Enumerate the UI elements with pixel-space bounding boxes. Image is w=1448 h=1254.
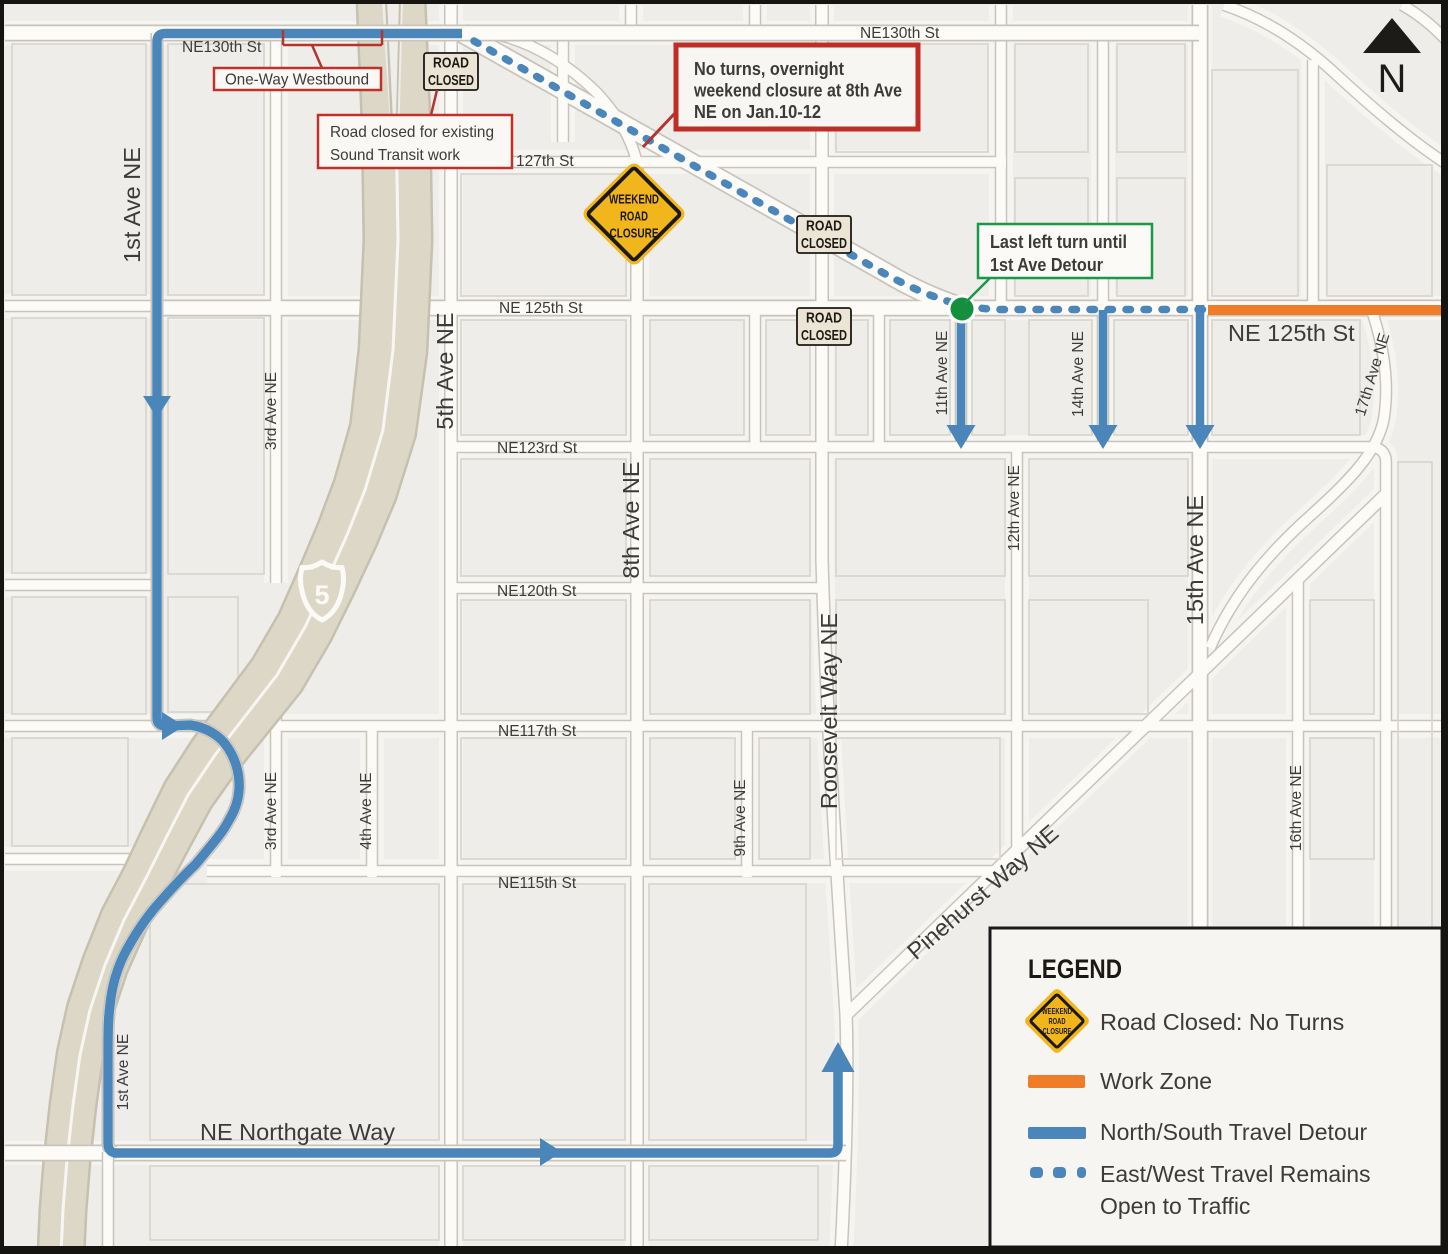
svg-text:ROAD: ROAD — [806, 218, 842, 235]
svg-text:NE115th St: NE115th St — [498, 875, 577, 892]
svg-text:CLOSED: CLOSED — [428, 72, 474, 89]
svg-text:1st Ave NE: 1st Ave NE — [119, 147, 145, 263]
svg-text:11th Ave NE: 11th Ave NE — [934, 331, 951, 416]
svg-text:3rd Ave NE: 3rd Ave NE — [263, 772, 280, 850]
svg-text:North/South Travel Detour: North/South Travel Detour — [1100, 1119, 1368, 1145]
svg-text:ROAD: ROAD — [620, 209, 648, 224]
svg-text:WEEKEND: WEEKEND — [609, 192, 659, 207]
svg-text:NE on Jan.10-12: NE on Jan.10-12 — [694, 101, 821, 122]
svg-text:127th St: 127th St — [516, 153, 574, 170]
svg-text:NE130th St: NE130th St — [182, 39, 262, 56]
svg-text:CLOSURE: CLOSURE — [610, 226, 659, 241]
svg-text:15th Ave NE: 15th Ave NE — [1182, 495, 1208, 625]
svg-text:weekend closure at 8th Ave: weekend closure at 8th Ave — [693, 80, 902, 101]
svg-text:NE120th St: NE120th St — [497, 583, 577, 600]
svg-text:CLOSED: CLOSED — [801, 235, 847, 252]
svg-text:NE 125th St: NE 125th St — [499, 300, 583, 317]
svg-text:LEGEND: LEGEND — [1028, 954, 1122, 984]
svg-text:14th Ave NE: 14th Ave NE — [1070, 331, 1087, 417]
svg-text:ROAD: ROAD — [1049, 1016, 1066, 1026]
svg-text:5: 5 — [314, 580, 329, 610]
svg-text:East/West Travel Remains: East/West Travel Remains — [1100, 1161, 1371, 1187]
svg-text:NE Northgate Way: NE Northgate Way — [200, 1119, 395, 1145]
svg-text:5th Ave NE: 5th Ave NE — [432, 312, 458, 429]
svg-text:16th Ave NE: 16th Ave NE — [1288, 765, 1305, 851]
svg-text:Open to Traffic: Open to Traffic — [1100, 1193, 1250, 1219]
svg-text:Work Zone: Work Zone — [1100, 1068, 1212, 1094]
svg-text:Roosevelt Way NE: Roosevelt Way NE — [816, 613, 842, 809]
svg-text:ROAD: ROAD — [806, 310, 842, 327]
svg-text:N: N — [1378, 57, 1407, 101]
svg-text:Road closed for existing: Road closed for existing — [330, 124, 494, 141]
svg-text:Sound Transit work: Sound Transit work — [330, 147, 461, 164]
svg-text:3rd Ave NE: 3rd Ave NE — [263, 372, 280, 450]
svg-text:No turns, overnight: No turns, overnight — [694, 58, 844, 79]
svg-text:WEEKEND: WEEKEND — [1042, 1006, 1072, 1016]
svg-text:9th Ave NE: 9th Ave NE — [732, 779, 749, 856]
svg-text:NE130th St: NE130th St — [860, 25, 940, 42]
svg-text:One-Way Westbound: One-Way Westbound — [225, 72, 369, 89]
svg-text:12th Ave NE: 12th Ave NE — [1006, 465, 1023, 551]
svg-text:4th Ave NE: 4th Ave NE — [358, 772, 375, 849]
svg-text:Last left turn until: Last left turn until — [990, 232, 1127, 252]
svg-text:NE117th St: NE117th St — [498, 723, 577, 740]
svg-text:ROAD: ROAD — [433, 55, 469, 72]
svg-text:1st Ave NE: 1st Ave NE — [115, 1034, 132, 1110]
svg-text:1st Ave Detour: 1st Ave Detour — [990, 255, 1103, 275]
svg-text:Road Closed: No Turns: Road Closed: No Turns — [1100, 1009, 1344, 1035]
svg-text:NE 125th St: NE 125th St — [1228, 320, 1355, 346]
svg-text:CLOSURE: CLOSURE — [1043, 1026, 1072, 1036]
svg-text:CLOSED: CLOSED — [801, 327, 847, 344]
svg-text:NE123rd St: NE123rd St — [497, 440, 578, 457]
svg-text:8th Ave NE: 8th Ave NE — [618, 461, 644, 578]
